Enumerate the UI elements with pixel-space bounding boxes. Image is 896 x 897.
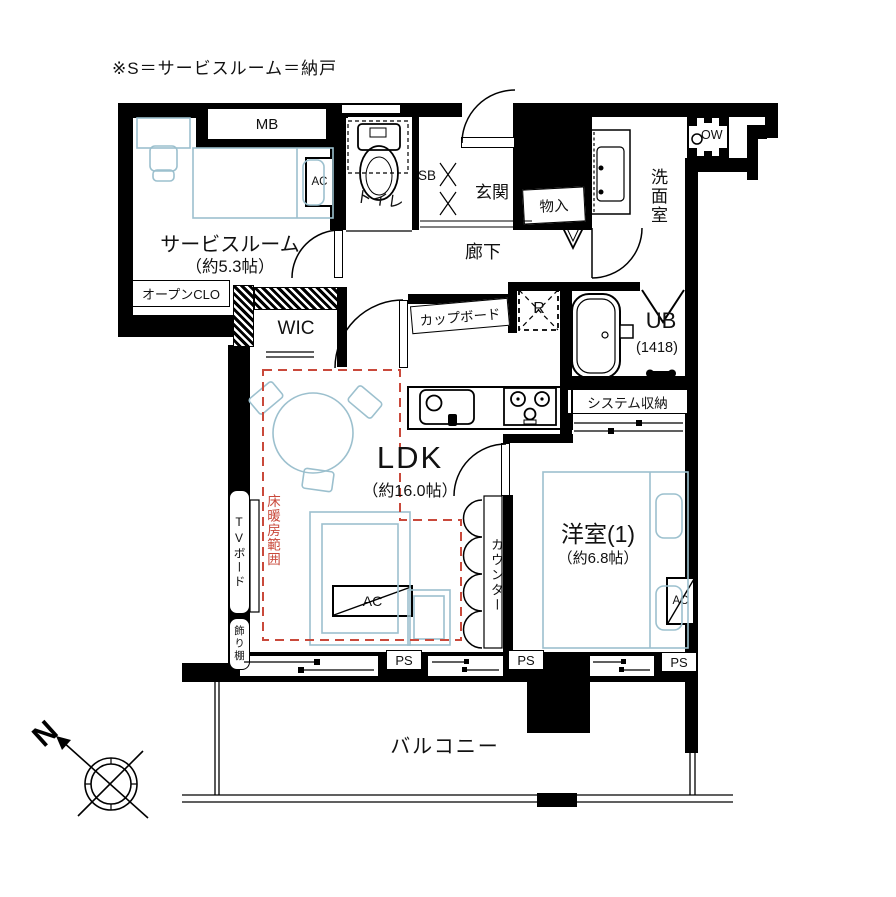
- sofa: [310, 512, 410, 645]
- door-leaf: [334, 230, 343, 278]
- display-shelf-label: 飾り棚: [229, 618, 250, 670]
- toilet-tank: [358, 124, 400, 150]
- service-room-note: ※S＝サービスルーム＝納戸: [112, 54, 337, 79]
- wall: [685, 682, 698, 753]
- bathtub: [572, 294, 620, 378]
- storage-label: 物入: [522, 186, 586, 224]
- wall: [503, 434, 573, 443]
- room-label-entrance: 玄関: [462, 178, 522, 203]
- wall: [517, 282, 640, 291]
- burner-icon: [511, 392, 525, 406]
- entrance-door-arc: [462, 90, 515, 143]
- north-label: N: [26, 714, 64, 753]
- dining-chair: [302, 468, 334, 492]
- room-label-ldk: LDK: [350, 440, 470, 476]
- dining-chair: [248, 381, 284, 416]
- tv-board-label: TVボード: [229, 490, 250, 614]
- chair-back: [153, 170, 174, 181]
- toilet-clearance: [348, 121, 408, 173]
- north-arrowhead: [56, 736, 71, 750]
- room-label-washroom: 洗面室: [645, 168, 670, 278]
- vanity-basin: [597, 147, 624, 201]
- burner-dot: [516, 397, 519, 400]
- pillow: [656, 494, 682, 538]
- faucet-icon: [448, 414, 457, 426]
- toilet-lid: [370, 128, 386, 137]
- balcony-divider: [537, 793, 577, 807]
- room-label-balcony: バルコニー: [385, 730, 505, 759]
- washer-label: OW: [701, 128, 723, 142]
- bath-mixer: [620, 325, 633, 338]
- tv-unit: [250, 500, 259, 612]
- dining-chair: [347, 385, 383, 420]
- fridge-label: R: [520, 300, 558, 318]
- room-size-bath: (1418): [626, 340, 688, 356]
- ac-unit-label: AC: [332, 585, 413, 617]
- kitchen-counter: [408, 387, 572, 429]
- hatched-wall: [233, 285, 254, 347]
- compass-cross-line: [78, 751, 143, 816]
- wall: [560, 282, 572, 442]
- stove: [504, 388, 556, 425]
- wall: [182, 663, 237, 682]
- dining-table: [273, 393, 353, 473]
- room-label-bath: UB: [636, 308, 686, 334]
- hatched-wall: [254, 287, 338, 310]
- open-closet-label: オープンCLO: [132, 280, 230, 307]
- accordion-door: [464, 500, 483, 648]
- chair: [150, 146, 177, 171]
- shoe-box-symbol: [440, 163, 456, 215]
- door-leaf: [399, 300, 408, 368]
- mail-box-label: MB: [208, 109, 326, 139]
- system-storage-label: システム収納: [567, 389, 688, 414]
- room-label-hallway: 廊下: [448, 238, 518, 264]
- ac-unit-label: AC: [666, 577, 695, 625]
- compass-inner-ring: [91, 764, 131, 804]
- ac-unit-label: AC: [305, 157, 334, 207]
- pipe-space-label: PS: [508, 650, 544, 670]
- wall-balcony-pier: [527, 682, 590, 733]
- room-size-western-room: （約6.8帖）: [540, 547, 656, 568]
- grill: [524, 420, 536, 424]
- sliding-window: [240, 656, 378, 676]
- sliding-window: [428, 656, 503, 676]
- vanity-faucet: [599, 190, 604, 195]
- wall: [118, 315, 236, 337]
- room-label-toilet: トイレ: [347, 182, 414, 215]
- counter-label: カウンター: [487, 538, 506, 630]
- room-size-ldk: （約16.0帖）: [345, 477, 475, 501]
- ottoman-inner: [414, 596, 444, 639]
- wall: [582, 103, 778, 117]
- door-arc: [592, 228, 642, 278]
- room-size-service-room: （約5.3帖）: [140, 253, 320, 277]
- sliding-window: [590, 656, 654, 676]
- door-handle: [608, 428, 614, 434]
- room-label-western-room: 洋室(1): [540, 515, 656, 549]
- sink-drain: [427, 396, 442, 411]
- bathtub-inner: [577, 299, 615, 373]
- kitchen-sink: [420, 390, 474, 424]
- compass-outer-ring: [85, 758, 137, 810]
- pipe-space-label: PS: [661, 652, 697, 672]
- vanity: [590, 130, 630, 214]
- pipe-space-label: PS: [386, 650, 422, 670]
- compass-ticks: [85, 758, 137, 810]
- wall: [572, 376, 685, 390]
- entrance-door-leaf: [461, 137, 515, 148]
- compass-needle-line: [62, 741, 148, 818]
- tub-drain: [602, 332, 608, 338]
- burner-icon: [525, 409, 536, 420]
- wic-sliding-door: [266, 352, 314, 357]
- door-handle: [636, 420, 642, 426]
- ottoman: [408, 590, 450, 645]
- compass: [62, 741, 148, 818]
- door-leaf: [501, 443, 510, 496]
- window-slit: [342, 105, 400, 113]
- room-label-wic: WIC: [254, 318, 338, 340]
- burner-icon: [535, 392, 549, 406]
- floor-plan: ※S＝サービスルーム＝納戸 MB PS PS PS オープンCLO カップボード…: [0, 0, 896, 897]
- burner-dot: [540, 397, 543, 400]
- desk: [137, 118, 190, 148]
- closet-sliding-door: [574, 423, 683, 431]
- floor-heating-label: 床暖房範囲: [262, 494, 282, 626]
- wall: [337, 287, 347, 367]
- vanity-faucet: [599, 166, 604, 171]
- room-label-shoe-box: SB: [414, 168, 440, 183]
- wall: [118, 103, 133, 337]
